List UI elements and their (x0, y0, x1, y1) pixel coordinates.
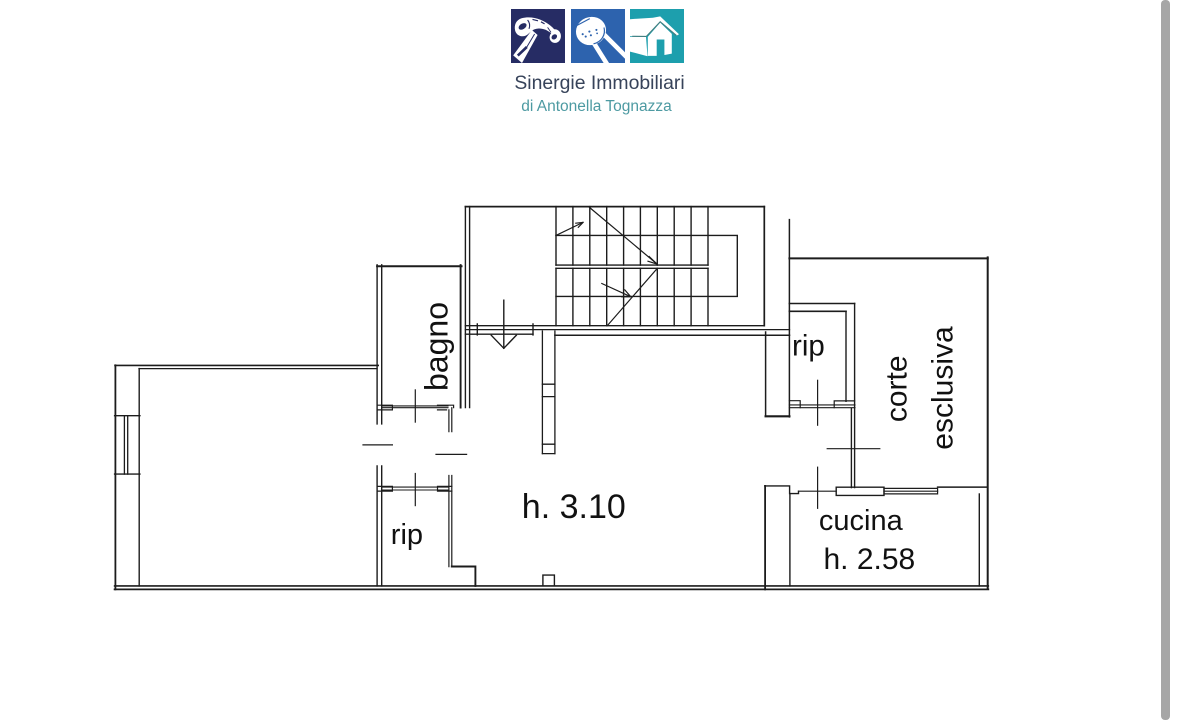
svg-text:esclusiva: esclusiva (927, 326, 960, 450)
svg-text:h. 3.10: h. 3.10 (522, 488, 626, 526)
svg-text:bagno: bagno (419, 302, 455, 391)
svg-text:corte: corte (880, 355, 913, 422)
svg-text:cucina: cucina (819, 505, 904, 537)
svg-text:rip: rip (391, 519, 423, 551)
svg-text:rip: rip (792, 329, 825, 362)
svg-text:h. 2.58: h. 2.58 (824, 543, 916, 576)
